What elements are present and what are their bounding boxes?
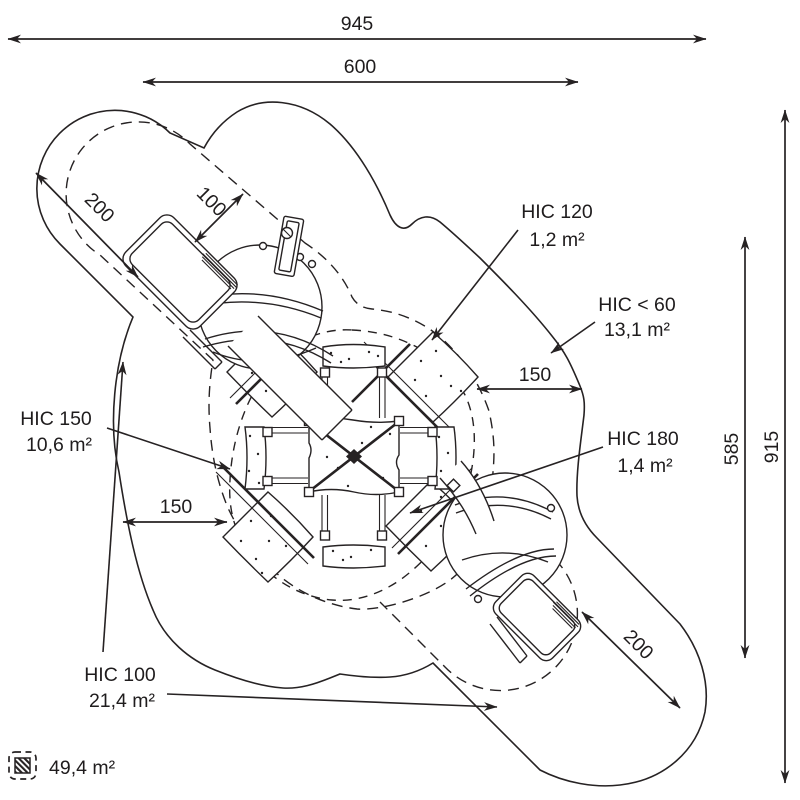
spiral-slide-top-left bbox=[119, 211, 352, 440]
dim-150l-value: 150 bbox=[160, 496, 193, 518]
dimension-585: 585 bbox=[721, 237, 745, 658]
dimension-150-right: 150 bbox=[477, 364, 582, 389]
hic-180-area: 1,4 m² bbox=[617, 455, 673, 477]
hic-60-name: HIC < 60 bbox=[598, 294, 676, 316]
legend-total-area: 49,4 m² bbox=[9, 752, 116, 779]
diamond-platform-top-right bbox=[388, 332, 478, 422]
hic-120-area: 1,2 m² bbox=[529, 229, 585, 251]
dimension-150-left: 150 bbox=[123, 496, 227, 522]
dim-200br-value: 200 bbox=[619, 625, 658, 664]
hic-120-label: HIC 120 1,2 m² bbox=[432, 201, 593, 340]
playground-safety-plan: 945 600 200 100 150 150 200 585 915 HIC … bbox=[0, 0, 800, 800]
dim-150r-value: 150 bbox=[519, 364, 552, 386]
spiral-slide-bottom-right bbox=[440, 461, 584, 664]
hic-180-name: HIC 180 bbox=[607, 428, 679, 450]
dim-100-value: 100 bbox=[192, 182, 231, 221]
dimension-200-top-left: 200 bbox=[36, 173, 138, 277]
dim-945-value: 945 bbox=[341, 13, 374, 35]
hic-100-name: HIC 100 bbox=[84, 664, 156, 686]
hic-150-area: 10,6 m² bbox=[26, 434, 93, 456]
hic-100-area: 21,4 m² bbox=[89, 690, 156, 712]
legend-area-value: 49,4 m² bbox=[49, 757, 116, 779]
dim-200tl-value: 200 bbox=[80, 188, 119, 227]
dim-915-value: 915 bbox=[761, 431, 783, 464]
dim-600-value: 600 bbox=[344, 56, 377, 78]
site-plan-svg: 945 600 200 100 150 150 200 585 915 HIC … bbox=[0, 0, 800, 800]
hic-150-name: HIC 150 bbox=[20, 408, 92, 430]
legend-hatch-swatch bbox=[15, 758, 30, 773]
dim-585-value: 585 bbox=[721, 433, 743, 466]
dimension-200-bottom-right: 200 bbox=[582, 612, 680, 708]
hic-60-label: HIC < 60 13,1 m² bbox=[551, 294, 676, 353]
diamond-platform-bottom-left bbox=[223, 492, 313, 582]
hic-60-area: 13,1 m² bbox=[604, 319, 671, 341]
dimension-100: 100 bbox=[192, 182, 243, 242]
hic-150-label: HIC 150 10,6 m² bbox=[20, 408, 230, 469]
hic-120-name: HIC 120 bbox=[521, 201, 593, 223]
dimension-600: 600 bbox=[143, 56, 578, 82]
dimension-915: 915 bbox=[761, 110, 785, 783]
dimension-945: 945 bbox=[8, 13, 706, 39]
